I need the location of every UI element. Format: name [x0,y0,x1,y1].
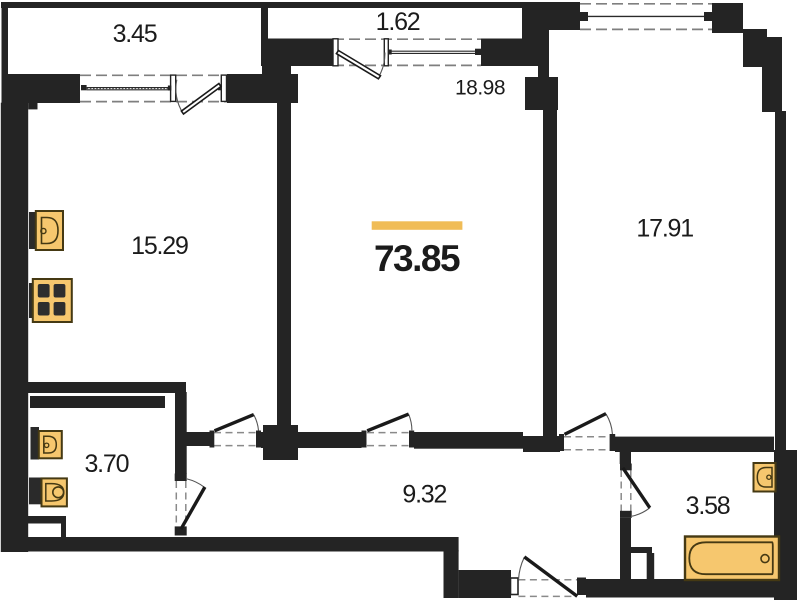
svg-text:3.70: 3.70 [84,450,128,478]
svg-text:3.45: 3.45 [113,20,157,48]
svg-text:73.85: 73.85 [374,238,460,279]
svg-text:17.91: 17.91 [636,215,693,243]
svg-text:1.62: 1.62 [376,8,420,36]
svg-text:18.98: 18.98 [455,76,505,99]
svg-text:9.32: 9.32 [402,481,446,509]
svg-text:15.29: 15.29 [131,232,188,260]
svg-text:3.58: 3.58 [686,492,730,520]
